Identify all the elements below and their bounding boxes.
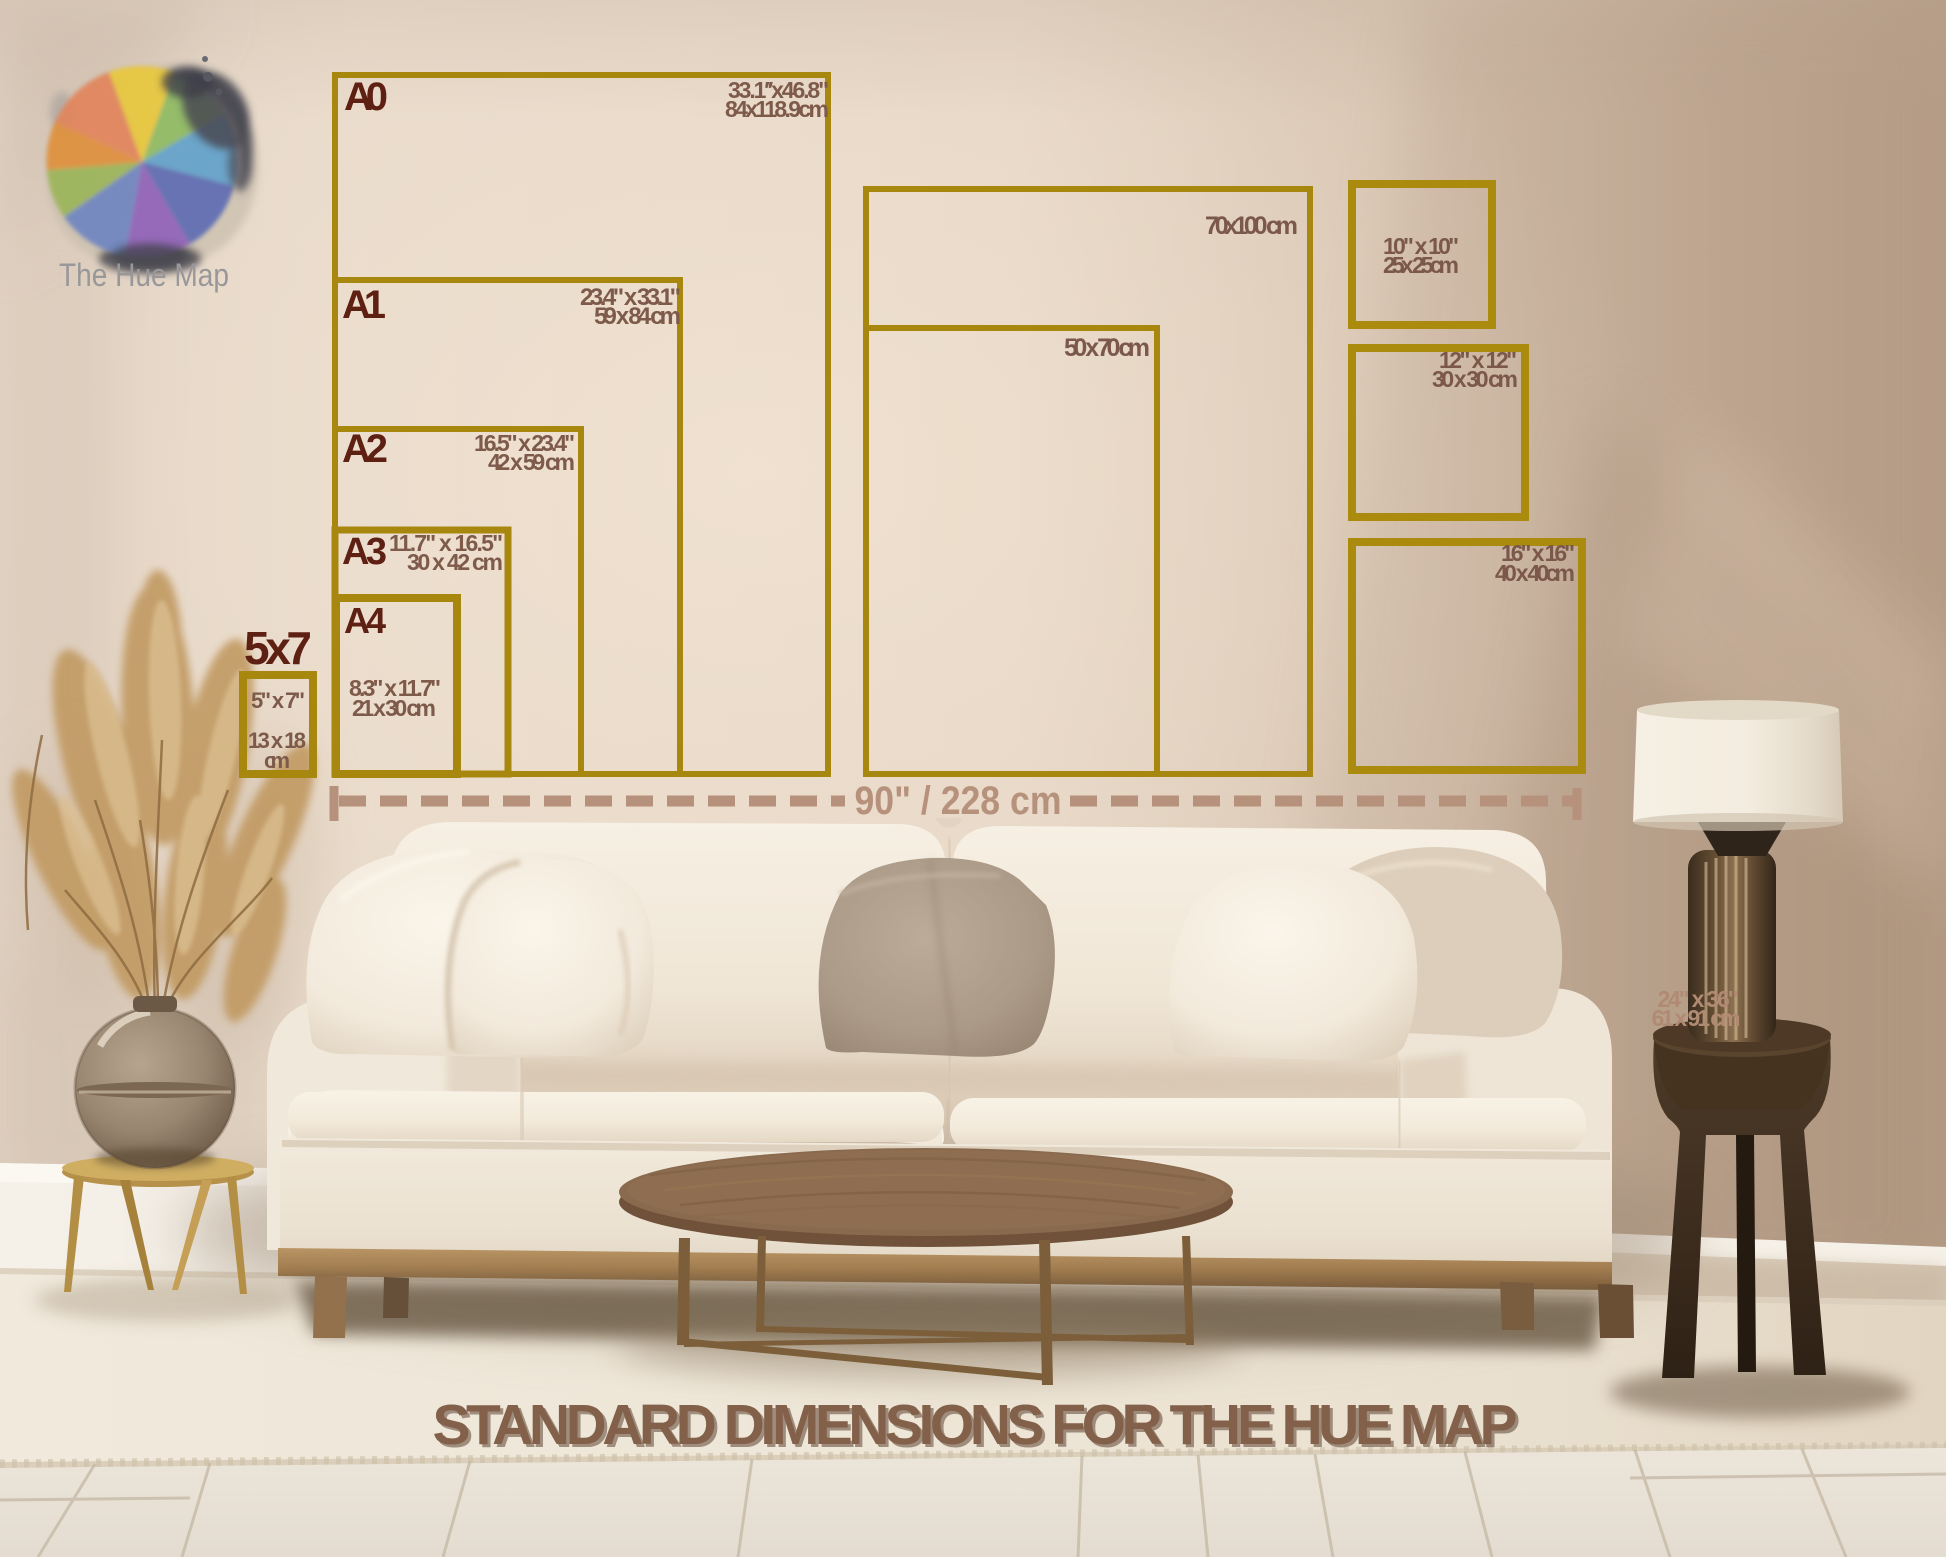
svg-text:5" x 7": 5" x 7" [251, 688, 305, 713]
svg-text:84x118.9cm: 84x118.9cm [725, 96, 829, 122]
svg-text:90" / 228 cm: 90" / 228 cm [855, 779, 1062, 823]
svg-text:The Hue Map: The Hue Map [59, 257, 229, 293]
svg-text:STANDARD DIMENSIONS FOR THE HU: STANDARD DIMENSIONS FOR THE HUE MAP [433, 1393, 1518, 1457]
svg-text:cm: cm [264, 748, 290, 773]
svg-text:30 x 42 cm: 30 x 42 cm [407, 549, 503, 575]
svg-text:50 x 70 cm: 50 x 70 cm [1064, 334, 1150, 362]
svg-text:40 x 40cm: 40 x 40cm [1495, 560, 1575, 586]
svg-text:61 x 91 cm: 61 x 91 cm [1652, 1005, 1741, 1031]
svg-text:A4: A4 [344, 600, 386, 641]
svg-text:A1: A1 [342, 283, 386, 327]
svg-text:A3: A3 [342, 531, 387, 573]
svg-text:42 x 59 cm: 42 x 59 cm [488, 449, 575, 475]
svg-text:21 x 30 cm: 21 x 30 cm [352, 695, 436, 721]
svg-text:70x100 cm: 70x100 cm [1205, 212, 1298, 240]
svg-text:5x7: 5x7 [244, 622, 312, 674]
svg-text:A2: A2 [342, 427, 388, 471]
svg-text:59 x 84 cm: 59 x 84 cm [594, 303, 681, 330]
svg-text:30 x 30 cm: 30 x 30 cm [1432, 366, 1518, 392]
svg-text:A0: A0 [344, 75, 388, 119]
svg-text:25x 25cm: 25x 25cm [1383, 252, 1459, 278]
